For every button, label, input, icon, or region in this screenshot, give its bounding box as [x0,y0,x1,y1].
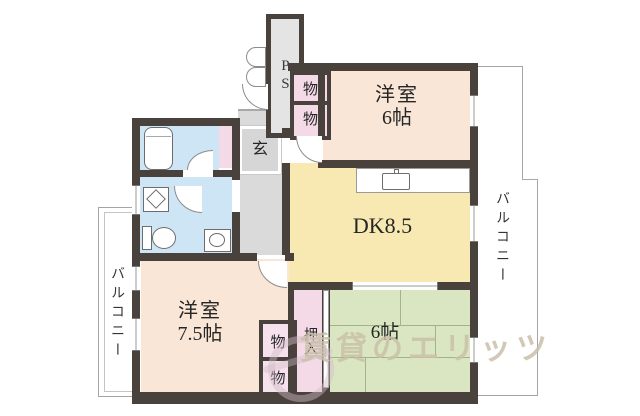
west6-door-arc [296,136,322,163]
wall [282,128,290,138]
wall [285,253,294,261]
balcony-right-upper [478,66,523,180]
kitchen-counter [356,168,470,193]
toilet-tank [142,226,152,250]
toilet-bowl [152,227,176,249]
wall [288,282,294,394]
entrance-storage-door-leaf [246,67,266,87]
window-opening [470,337,478,363]
entrance-door-arc [242,84,268,110]
wall [282,163,290,255]
oshiire-label: 押入 [299,313,317,369]
wall [288,282,352,290]
wall [132,118,240,126]
wall [232,118,240,180]
wall [139,170,183,177]
room-west6-name: 洋室 [347,84,447,106]
window-opening [132,266,140,291]
tatami-line [435,325,436,357]
window-opening [470,95,478,127]
room-west6-size: 6帖 [347,107,447,129]
wall [232,212,240,255]
storage-label: 物 [303,112,318,129]
wall [288,63,478,71]
entrance-storage-door-leaf [246,47,266,67]
wall [318,63,325,138]
kitchen-faucet [394,169,399,174]
tatami-line [330,357,470,358]
room-west75-size: 7.5帖 [150,323,250,345]
wall [318,160,470,168]
balcony-right-label: バルコニー [489,168,509,308]
window-opening [132,185,140,215]
window-opening [132,318,140,351]
balcony-left-label: バルコニー [104,243,124,383]
room-dk-label: DK8.5 [310,214,455,239]
storage-label: 物 [270,335,285,352]
floorplan-canvas: バルコニー バルコニー 玄 PS 物 物 物 物 [0,0,640,416]
door-opening [232,180,240,212]
wall [213,170,233,177]
bathtub [144,127,173,170]
room-tatami6-label: 6帖 [350,322,420,343]
genkan-label: 玄 [252,141,268,159]
wall [438,282,478,290]
washbasin-bowl [209,233,225,247]
wall [132,392,478,404]
bathtub-line [146,136,171,137]
window-opening [470,205,478,242]
storage-label: 物 [270,371,285,388]
washstand-strip [219,124,232,168]
door-opening [183,170,213,177]
storage-label: 物 [303,82,318,99]
sliding-door-opening [352,282,438,290]
room-west75-name: 洋室 [150,300,250,322]
kitchen-sink [382,173,410,190]
balcony-right-step-line [522,179,538,180]
tatami-line [400,290,401,325]
wall [132,253,257,261]
oshiire-sliding-door [323,290,329,388]
tatami-line [365,357,366,394]
